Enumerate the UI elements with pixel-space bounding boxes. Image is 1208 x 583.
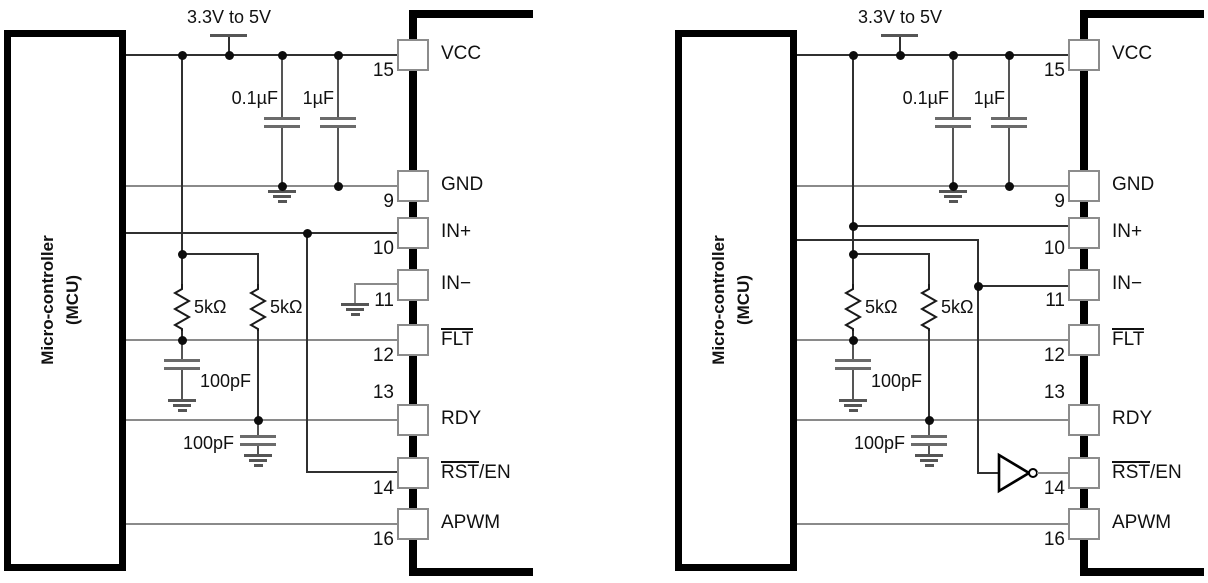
- flt-cap-value: 100pF: [871, 371, 922, 392]
- rdy-cap-value: 100pF: [825, 433, 905, 454]
- pin-box-in-plus: [1068, 217, 1100, 249]
- pin-box-flt: [1068, 324, 1100, 356]
- pin-label-flt: FLT: [1112, 328, 1144, 351]
- junction-dot: [303, 229, 312, 238]
- pullup-branch-wire: [852, 253, 930, 255]
- rdy-cap-value: 100pF: [154, 433, 234, 454]
- pin-number-12: 12: [318, 345, 394, 367]
- pin-box-in-minus: [1068, 269, 1100, 301]
- pin-label-in-plus: IN+: [441, 221, 471, 243]
- pin-label-gnd: GND: [1112, 174, 1154, 196]
- cap1-stub-bottom: [952, 128, 954, 186]
- pin-label-rst-en: RST/EN: [1112, 461, 1182, 484]
- junction-dot: [225, 51, 234, 60]
- pin-box-rst-en: [1068, 457, 1100, 489]
- resistor-icon: [919, 284, 939, 333]
- junction-dot: [334, 182, 343, 191]
- supply-bar-icon: [210, 34, 247, 37]
- pin-label-in-minus: IN−: [441, 273, 471, 295]
- junction-dot: [178, 250, 187, 259]
- pin-number-16: 16: [989, 529, 1065, 551]
- pin-box-flt: [397, 324, 429, 356]
- pin-number-9: 9: [989, 191, 1065, 213]
- inverter-output-wire: [1037, 472, 1068, 474]
- pin-number-10: 10: [318, 238, 394, 260]
- junction-dot: [334, 51, 343, 60]
- mcu-signal-hwire: [797, 239, 979, 241]
- pin-number-15: 15: [989, 60, 1065, 82]
- junction-dot: [1005, 182, 1014, 191]
- cap2-value: 1µF: [943, 88, 1005, 109]
- r1-value: 5kΩ: [194, 297, 226, 318]
- pin-box-apwm: [397, 508, 429, 540]
- pin-box-rst-en: [397, 457, 429, 489]
- resistor-icon: [248, 284, 268, 333]
- resistor-icon: [172, 284, 192, 333]
- pin-number-15: 15: [318, 60, 394, 82]
- pin-box-in-plus: [397, 217, 429, 249]
- junction-dot: [974, 282, 983, 291]
- pin-number-13: 13: [989, 382, 1065, 404]
- junction-dot: [849, 51, 858, 60]
- junction-dot: [178, 336, 187, 345]
- junction-dot: [849, 250, 858, 259]
- pin-box-rdy: [397, 404, 429, 436]
- pin-label-flt: FLT: [441, 328, 473, 351]
- r2-value: 5kΩ: [270, 297, 302, 318]
- schematic-figure: Micro-controller (MCU) 3.3V to 5V 0.1µF …: [0, 0, 1208, 583]
- pin-box-gnd: [397, 170, 429, 202]
- junction-dot: [1005, 51, 1014, 60]
- circuit-diagram-right: Micro-controller (MCU) 3.3V to 5V 0.1µF …: [671, 0, 1208, 583]
- ic-top-stub: [1080, 10, 1204, 18]
- junction-dot: [949, 182, 958, 191]
- capacitor-icon: [164, 359, 200, 362]
- cap1-stub-bottom: [281, 128, 283, 186]
- mcu-signal-vwire: [977, 239, 979, 474]
- pin-number-11: 11: [989, 290, 1065, 312]
- resistor-icon: [843, 284, 863, 333]
- rst-branch-hwire: [306, 471, 397, 473]
- apwm-wire: [797, 523, 1068, 525]
- pin-number-11: 11: [318, 290, 394, 312]
- r2-top-stub: [928, 254, 930, 285]
- pin-box-vcc: [397, 39, 429, 71]
- pin-number-9: 9: [318, 191, 394, 213]
- in-plus-wire: [852, 225, 1068, 227]
- pin-label-vcc: VCC: [441, 43, 481, 65]
- flt-wire: [797, 339, 1068, 341]
- ic-top-stub: [409, 10, 533, 18]
- pin-label-vcc: VCC: [1112, 43, 1152, 65]
- r2-bottom-stub: [257, 331, 259, 420]
- junction-dot: [849, 336, 858, 345]
- capacitor-icon: [991, 117, 1027, 120]
- mcu-label-line2: (MCU): [732, 150, 757, 450]
- in-minus-wire: [977, 285, 1068, 287]
- pullup-branch-wire: [181, 253, 259, 255]
- pin-number-10: 10: [989, 238, 1065, 260]
- rst-branch-vwire: [306, 232, 308, 473]
- pin-number-13: 13: [318, 382, 394, 404]
- junction-dot: [278, 182, 287, 191]
- junction-dot: [254, 416, 263, 425]
- pin-box-gnd: [1068, 170, 1100, 202]
- pin-label-apwm: APWM: [1112, 512, 1171, 534]
- pin-label-in-plus: IN+: [1112, 221, 1142, 243]
- supply-bar-icon: [881, 34, 918, 37]
- pin-label-rdy: RDY: [441, 408, 481, 430]
- mcu-label-line1: Micro-controller: [36, 150, 61, 450]
- pin-box-rdy: [1068, 404, 1100, 436]
- inverter-input-wire: [977, 472, 999, 474]
- gnd-rail: [126, 185, 397, 187]
- gnd-rail: [797, 185, 1068, 187]
- flt-cap-stub2: [852, 370, 854, 399]
- junction-dot: [278, 51, 287, 60]
- mcu-label: Micro-controller (MCU): [36, 150, 94, 450]
- rdy-cap-stub2: [928, 446, 930, 454]
- junction-dot: [178, 51, 187, 60]
- capacitor-icon: [935, 117, 971, 120]
- capacitor-icon: [264, 117, 300, 120]
- pin-number-14: 14: [318, 478, 394, 500]
- vcc-rail: [126, 54, 397, 56]
- capacitor-icon: [320, 117, 356, 120]
- flt-cap-stub2: [181, 370, 183, 399]
- apwm-wire: [126, 523, 397, 525]
- supply-label: 3.3V to 5V: [149, 7, 309, 28]
- r2-top-stub: [257, 254, 259, 285]
- mcu-label-line1: Micro-controller: [707, 150, 732, 450]
- pin-label-gnd: GND: [441, 174, 483, 196]
- pin-label-rst-en: RST/EN: [441, 461, 511, 484]
- junction-dot: [849, 222, 858, 231]
- cap2-value: 1µF: [272, 88, 334, 109]
- capacitor-icon: [240, 435, 276, 438]
- r2-value: 5kΩ: [941, 297, 973, 318]
- cap2-stub-bottom: [1008, 128, 1010, 186]
- circuit-diagram-left: Micro-controller (MCU) 3.3V to 5V 0.1µF …: [0, 0, 538, 583]
- pin-box-vcc: [1068, 39, 1100, 71]
- rdy-cap-stub2: [257, 446, 259, 454]
- pin-label-apwm: APWM: [441, 512, 500, 534]
- ic-bottom-stub: [409, 568, 533, 576]
- ic-bottom-stub: [1080, 568, 1204, 576]
- junction-dot: [949, 51, 958, 60]
- in-plus-wire: [126, 232, 397, 234]
- pin-box-in-minus: [397, 269, 429, 301]
- junction-dot: [896, 51, 905, 60]
- r2-bottom-stub: [928, 331, 930, 420]
- cap1-value: 0.1µF: [869, 88, 949, 109]
- pin-label-rdy: RDY: [1112, 408, 1152, 430]
- pin-box-apwm: [1068, 508, 1100, 540]
- pin-number-14: 14: [989, 478, 1065, 500]
- flt-cap-value: 100pF: [200, 371, 251, 392]
- pin-label-in-minus: IN−: [1112, 273, 1142, 295]
- pin-number-12: 12: [989, 345, 1065, 367]
- junction-dot: [925, 416, 934, 425]
- capacitor-icon: [911, 435, 947, 438]
- supply-label: 3.3V to 5V: [820, 7, 980, 28]
- in-minus-wire: [355, 283, 397, 285]
- r1-value: 5kΩ: [865, 297, 897, 318]
- vcc-rail: [797, 54, 1068, 56]
- flt-wire: [126, 339, 397, 341]
- mcu-label-line2: (MCU): [61, 150, 86, 450]
- capacitor-icon: [835, 359, 871, 362]
- cap2-stub-bottom: [337, 128, 339, 186]
- mcu-label: Micro-controller (MCU): [707, 150, 765, 450]
- pin-number-16: 16: [318, 529, 394, 551]
- cap1-value: 0.1µF: [198, 88, 278, 109]
